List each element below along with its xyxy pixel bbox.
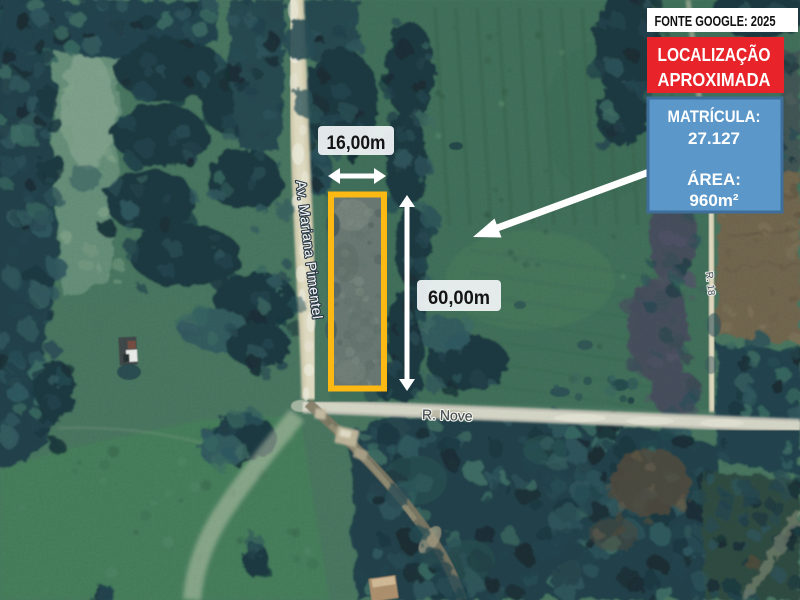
svg-text:ÁREA:: ÁREA: — [687, 170, 741, 189]
svg-text:960m²: 960m² — [689, 191, 738, 210]
svg-text:MATRÍCULA:: MATRÍCULA: — [668, 107, 761, 126]
svg-text:APROXIMADA: APROXIMADA — [658, 70, 771, 90]
svg-text:FONTE GOOGLE: 2025: FONTE GOOGLE: 2025 — [655, 13, 776, 30]
svg-text:27.127: 27.127 — [688, 129, 740, 148]
svg-text:60,00m: 60,00m — [428, 288, 490, 309]
svg-text:R. Nove: R. Nove — [422, 406, 473, 424]
svg-text:16,00m: 16,00m — [327, 133, 386, 154]
svg-text:LOCALIZAÇÃO: LOCALIZAÇÃO — [658, 44, 771, 65]
